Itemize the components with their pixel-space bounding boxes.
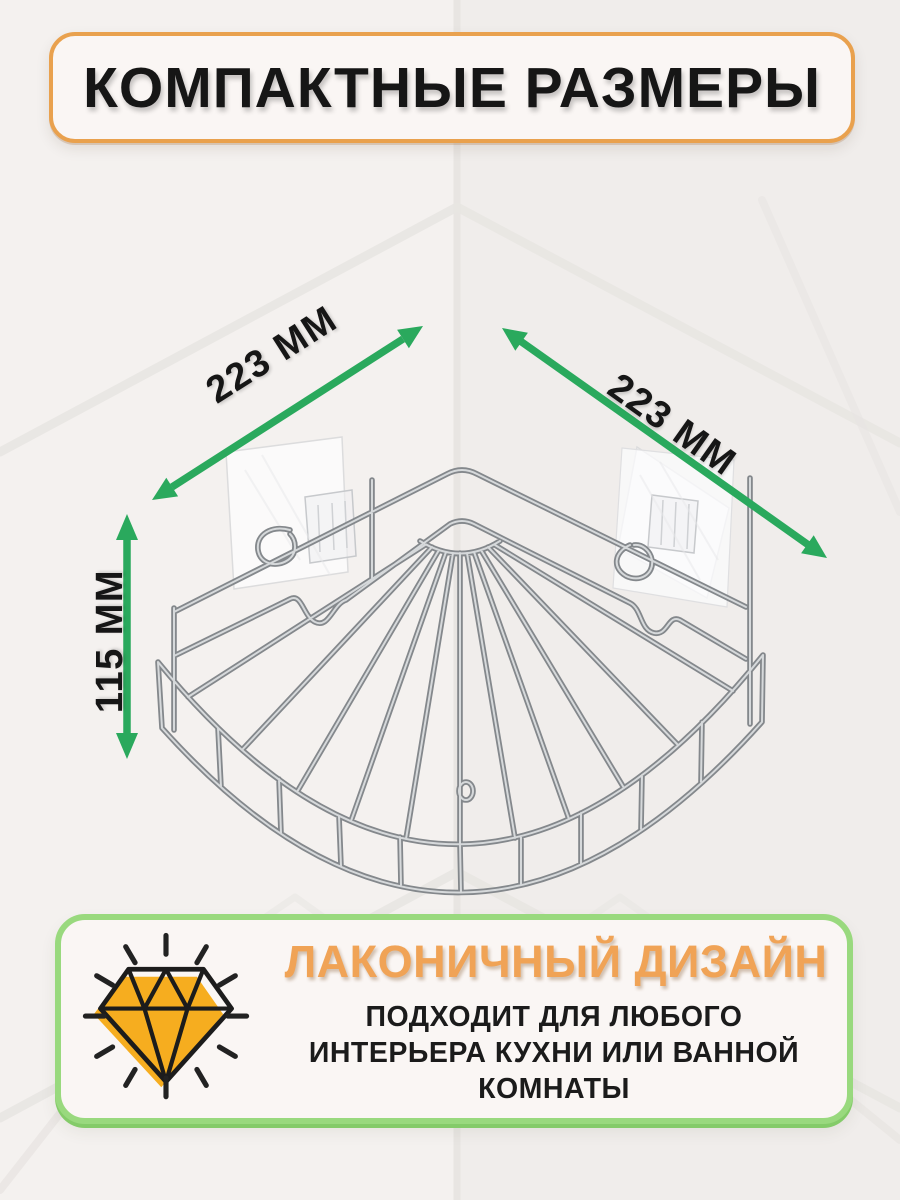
adhesive-pad-left — [223, 437, 356, 589]
feature-description-line: КОМНАТЫ — [274, 1071, 834, 1107]
banner-title: КОМПАКТНЫЕ РАЗМЕРЫ — [83, 55, 821, 121]
feature-description: ПОДХОДИТ ДЛЯ ЛЮБОГО ИНТЕРЬЕРА КУХНИ ИЛИ … — [274, 999, 834, 1107]
feature-heading: ЛАКОНИЧНЫЙ ДИЗАЙН — [278, 936, 834, 988]
title-banner: КОМПАКТНЫЕ РАЗМЕРЫ — [49, 32, 855, 143]
feature-description-line: ИНТЕРЬЕРА КУХНИ ИЛИ ВАННОЙ — [274, 1035, 834, 1071]
dimension-label-height: 115 ММ — [86, 531, 134, 751]
feature-description-line: ПОДХОДИТ ДЛЯ ЛЮБОГО — [274, 999, 834, 1035]
diamond-sparkle-icon — [80, 928, 252, 1106]
